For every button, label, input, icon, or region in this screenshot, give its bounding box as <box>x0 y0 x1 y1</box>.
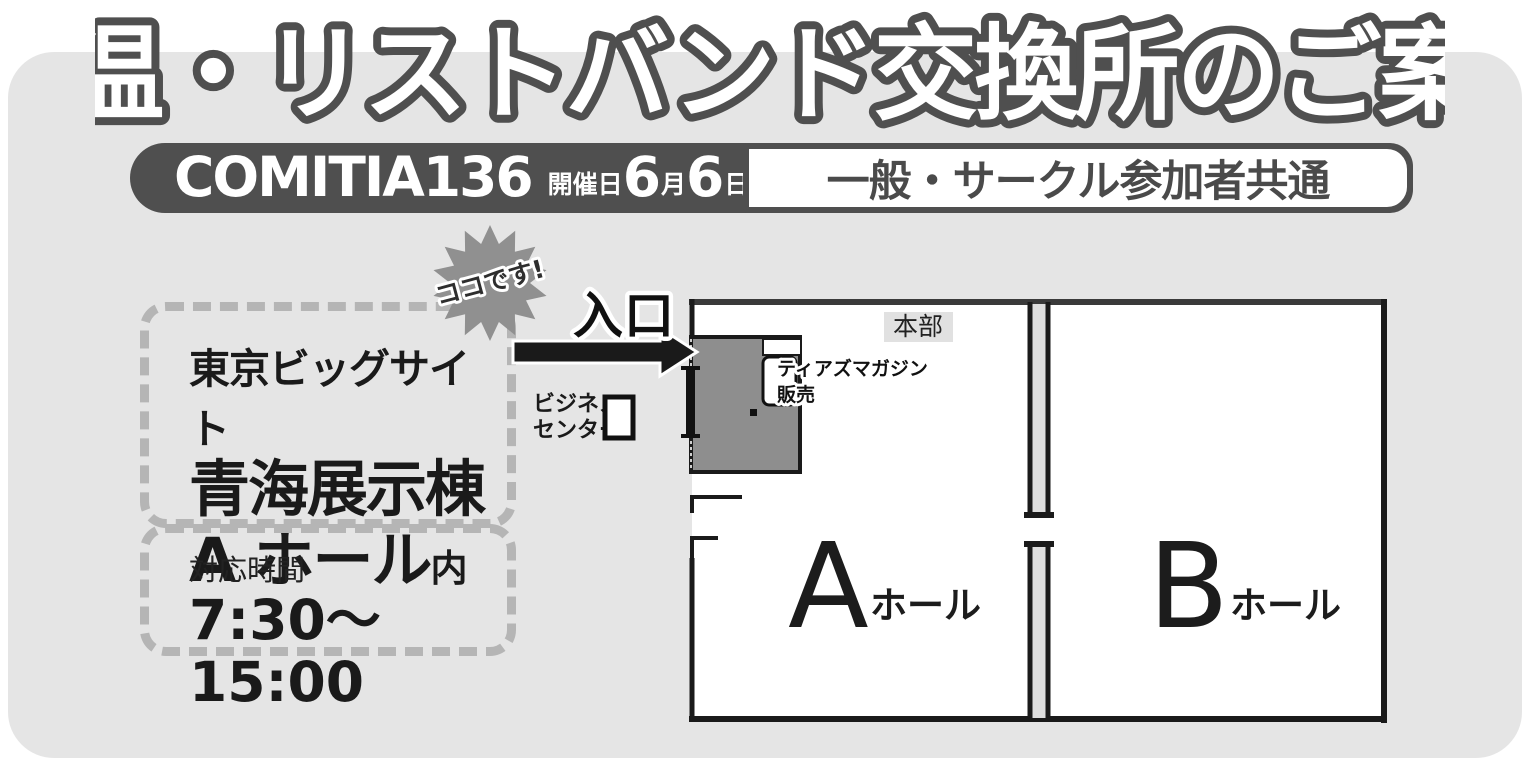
event-day-number: 6 <box>686 143 724 211</box>
event-month-unit: 月 <box>661 151 686 219</box>
poster-title-text: 検温・リストバンド交換所のご案内 <box>95 13 1445 135</box>
hall-b-suffix: ホール <box>1230 584 1341 627</box>
tears-magazine-label-line1: ティアズマガジン <box>777 357 928 380</box>
hall-a-suffix: ホール <box>870 584 981 627</box>
business-center-icon <box>605 397 633 438</box>
entrance-door-mark <box>686 367 695 437</box>
exchange-area-dot <box>750 409 757 416</box>
tears-magazine-label-line2: 販売 <box>777 383 815 406</box>
divider-top-fill <box>1032 304 1046 514</box>
divider-bottom-fill <box>1032 545 1046 718</box>
event-month-number: 6 <box>623 143 661 211</box>
event-date-label: 開催日 <box>548 151 623 219</box>
exchange-area-notch <box>763 339 801 355</box>
hq-label: 本部 <box>893 312 943 341</box>
poster-title: 検温・リストバンド交換所のご案内 検温・リストバンド交換所のご案内 <box>95 0 1445 148</box>
venue-map: ティアズマガジン ティアズマガジン 販売 販売 本部 A ホール B ホール ビ… <box>420 225 1400 740</box>
hall-a-letter: A <box>788 517 869 655</box>
entrance-label: 入口 <box>573 287 675 345</box>
audience-label: 一般・サークル参加者共通 <box>827 147 1330 209</box>
hall-b-letter: B <box>1148 517 1229 655</box>
event-bar: COMITIA136 開催日 6 月 6 日 一般・サークル参加者共通 <box>130 143 1413 213</box>
event-name: COMITIA136 <box>174 143 532 211</box>
event-bar-left: COMITIA136 開催日 6 月 6 日 <box>130 143 749 213</box>
audience-box: 一般・サークル参加者共通 <box>743 143 1413 213</box>
